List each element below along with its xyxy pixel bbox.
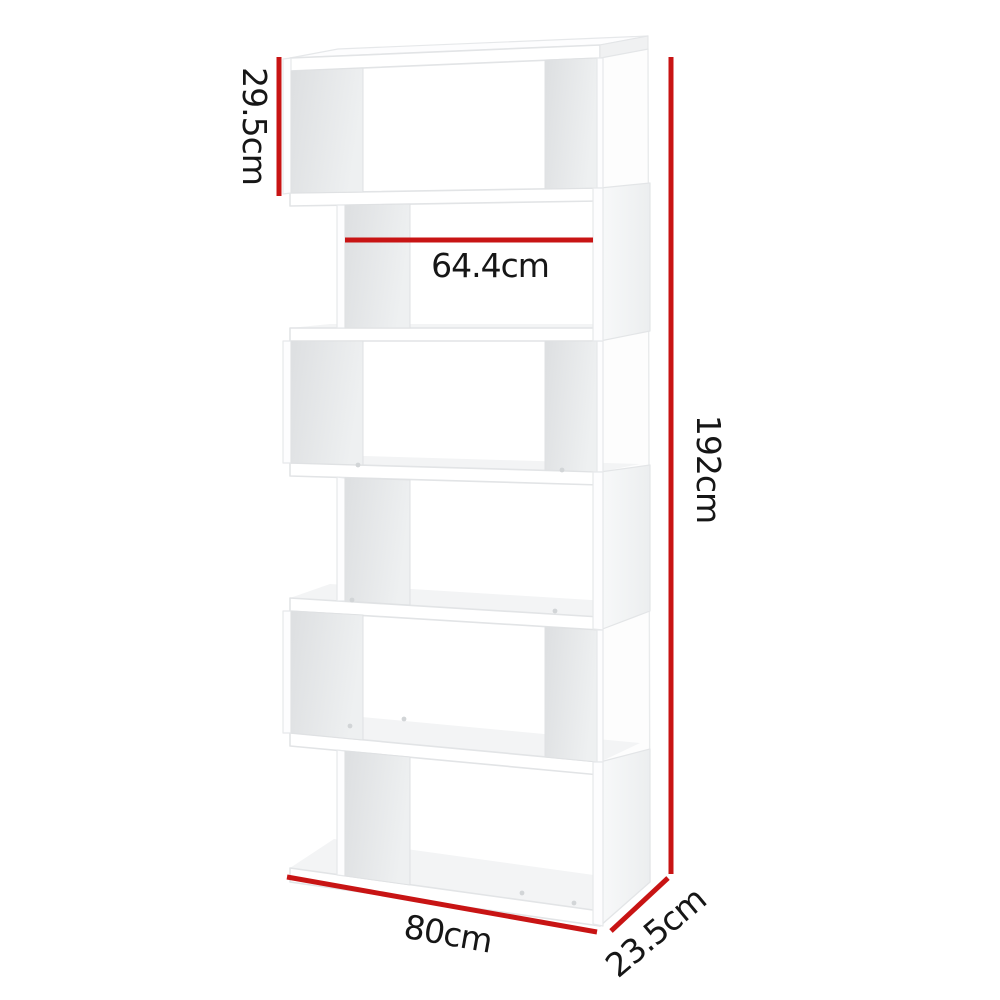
tier-2-divider-edge (337, 205, 345, 328)
dowel-hole (350, 598, 355, 603)
tier-2-divider (345, 204, 410, 328)
dowel-hole (356, 463, 361, 468)
dimension-diagram: 29.5cm 64.4cm 192cm 80cm 23.5cm (0, 0, 1000, 1000)
tier-3-left-panel-edge (283, 341, 291, 463)
tier-3-left-panel (291, 341, 363, 465)
dowel-hole (402, 717, 407, 722)
tier-6-right-edge (593, 762, 603, 926)
dowel-hole (560, 468, 565, 473)
tier-4-divider (345, 478, 410, 605)
tier-6-divider (345, 751, 410, 885)
tier-6-divider-edge (337, 750, 345, 876)
tier-1-right-divider-edge (597, 58, 603, 188)
tier-2-right-side-face (600, 183, 650, 341)
dowel-hole (572, 901, 577, 906)
dowel-hole (348, 724, 353, 729)
tier-height-label: 29.5cm (235, 67, 274, 185)
tier-1-right-divider (545, 58, 597, 189)
tier-4-divider-edge (337, 477, 345, 601)
tier-2-right-edge (593, 188, 603, 341)
tier-1-left-panel-edge (283, 58, 291, 194)
tier-4-right-side-face (600, 465, 650, 630)
shelf-board-3 (290, 328, 600, 341)
tier-3-right-divider-edge (597, 341, 603, 472)
tier-5-left-panel (291, 611, 363, 740)
total-height-label: 192cm (689, 415, 728, 523)
tier-3-right-divider (545, 341, 597, 472)
shelf-illustration (283, 36, 650, 926)
tier-5-right-divider-edge (597, 630, 603, 762)
inner-width-label: 64.4cm (431, 246, 549, 285)
width-label: 80cm (401, 907, 495, 961)
tier-4-right-edge (593, 472, 603, 630)
shelf-dimension-svg: 29.5cm 64.4cm 192cm 80cm 23.5cm (0, 0, 1000, 1000)
tier-5-left-panel-edge (283, 611, 291, 733)
tier-1-left-panel (291, 68, 363, 193)
dowel-hole (553, 609, 558, 614)
dowel-hole (520, 891, 525, 896)
tier-5-right-divider (545, 627, 597, 762)
